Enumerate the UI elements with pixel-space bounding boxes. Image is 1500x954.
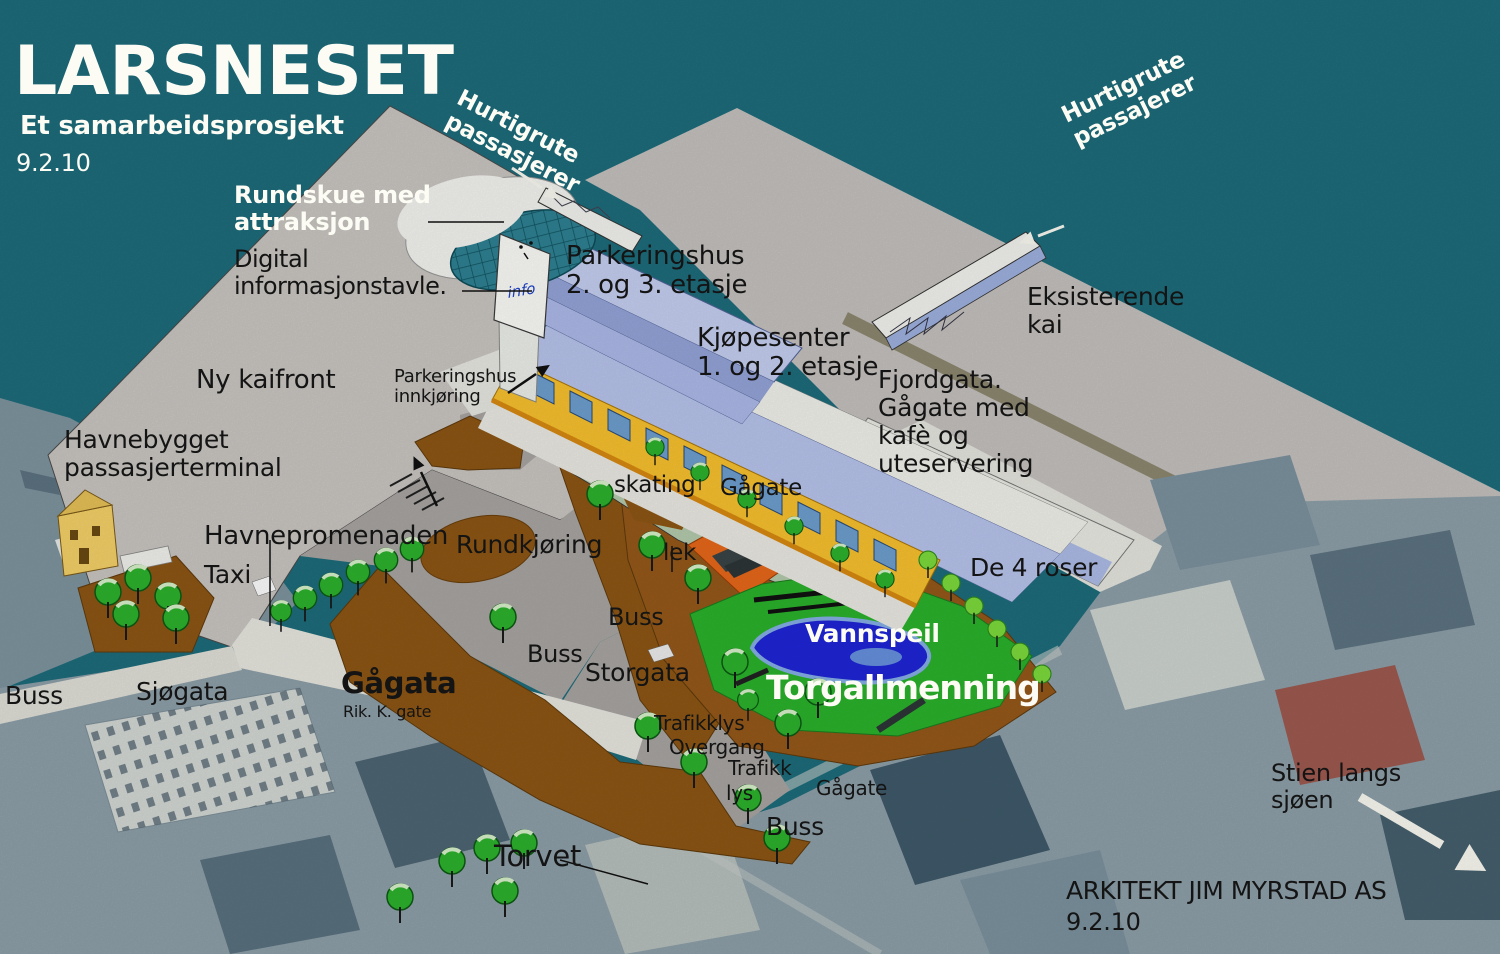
label-havnepromenaden: Havnepromenaden (204, 522, 448, 551)
label-rundkjoring: Rundkjøring (456, 531, 602, 559)
label-torvet: Torvet (494, 840, 581, 872)
label-stien-langs-sjoen: Stien langs sjøen (1271, 760, 1401, 814)
label-rundskue: Rundskue med attraksjon (234, 182, 431, 236)
label-subtitle: Et samarbeidsprosjekt (20, 112, 344, 141)
label-digital-informasjonstavle: Digital informasjonstavle. (234, 246, 447, 300)
label-trafikk: Trafikk (728, 757, 791, 779)
label-title: LARSNESET (14, 34, 454, 110)
label-taxi: Taxi (204, 561, 251, 589)
label-vannspeil: Vannspeil (805, 620, 940, 648)
site-plan: info (0, 0, 1500, 954)
label-buss-storgata: Buss (527, 641, 582, 668)
label-buss-vest: Buss (5, 682, 63, 710)
label-title-date: 9.2.10 (16, 150, 91, 177)
label-skating: skating (614, 473, 695, 499)
label-buss-lekepark: Buss (608, 604, 663, 631)
label-lys: lys (726, 782, 753, 804)
label-kjopesenter: Kjøpesenter 1. og 2. etasje (697, 324, 878, 382)
label-eksisterende-kai: Eksisterende kai (1027, 283, 1184, 339)
label-sjogata: Sjøgata (136, 678, 228, 706)
label-parkeringshus: Parkeringshus 2. og 3. etasje (566, 242, 747, 300)
label-ny-kaifront: Ny kaifront (196, 366, 335, 395)
label-gagate-upper: Gågate (720, 476, 802, 502)
label-rik-k-gate: Rik. K. gate (343, 703, 431, 721)
annotation-labels: LARSNESETEt samarbeidsprosjekt9.2.10Hurt… (0, 0, 1500, 954)
label-arkitekt: ARKITEKT JIM MYRSTAD AS (1066, 877, 1386, 905)
label-hurtigrute-left: Hurtigrute passasjerer (441, 86, 595, 199)
label-havnebygget: Havnebygget passasjerterminal (64, 426, 282, 482)
label-trafikklys: Trafikklys (654, 712, 744, 734)
label-parkeringshus-innkjoring: Parkeringshus innkjøring (394, 367, 516, 407)
label-hurtigrute-right: Hurtigrute passajerer (1058, 47, 1201, 152)
label-torgallmenning: Torgallmenning (766, 670, 1040, 707)
label-storgata: Storgata (585, 659, 690, 687)
label-gagate-lower: Gågate (816, 777, 887, 799)
label-gagata: Gågata (341, 667, 456, 699)
label-de-4-roser: De 4 roser (970, 554, 1097, 582)
label-fjordgata: Fjordgata. Gågate med kafè og uteserveri… (878, 366, 1033, 478)
label-lek: lek (663, 541, 696, 567)
label-arkitekt-date: 9.2.10 (1066, 909, 1141, 936)
label-buss-sor: Buss (766, 813, 824, 841)
